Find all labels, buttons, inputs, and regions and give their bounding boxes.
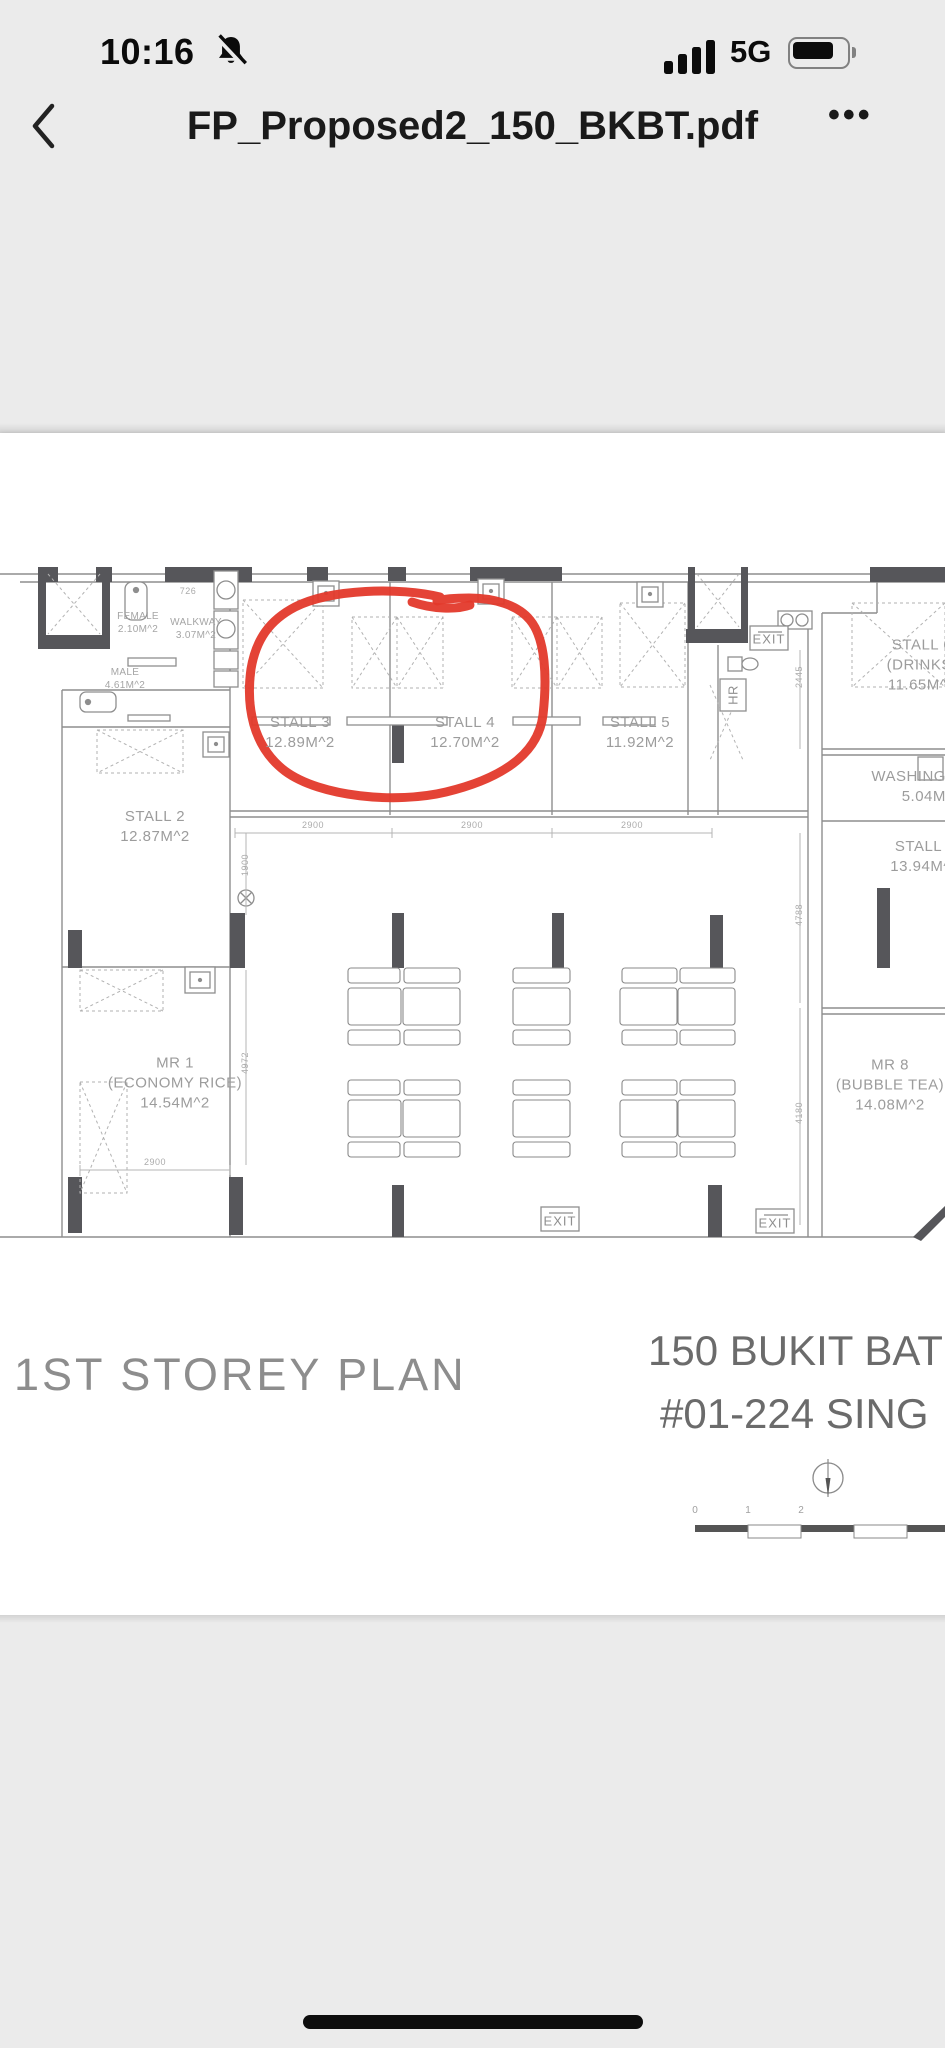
document-title: FP_Proposed2_150_BKBT.pdf (90, 104, 855, 149)
back-button[interactable] (28, 100, 72, 156)
top-chrome-shadow (0, 423, 945, 433)
north-arrow-and-scale-bar (0, 433, 945, 1615)
network-type-label: 5G (730, 34, 771, 70)
bell-slash-icon (212, 33, 250, 78)
status-bar: 10:16 5G (0, 25, 945, 81)
more-menu-button[interactable]: ••• (828, 96, 908, 152)
battery-fill (793, 42, 833, 59)
iphone-screen: 10:16 5G (0, 0, 945, 2048)
scale-tick-0: 0 (692, 1505, 698, 1516)
battery-icon (788, 37, 850, 69)
scale-tick-1: 1 (745, 1505, 751, 1516)
scale-tick-2: 2 (798, 1505, 804, 1516)
cellular-signal-icon (664, 39, 718, 80)
battery-nub (852, 47, 856, 58)
chevron-left-icon (28, 100, 58, 152)
status-time: 10:16 (100, 31, 195, 73)
home-indicator[interactable] (303, 2015, 643, 2029)
nav-bar: FP_Proposed2_150_BKBT.pdf ••• (0, 98, 945, 160)
pdf-page[interactable]: FEMALE2.10M^2 WALKWAY3.07M^2 MALE4.61M^2… (0, 433, 945, 1615)
bottom-chrome (0, 1615, 945, 2048)
